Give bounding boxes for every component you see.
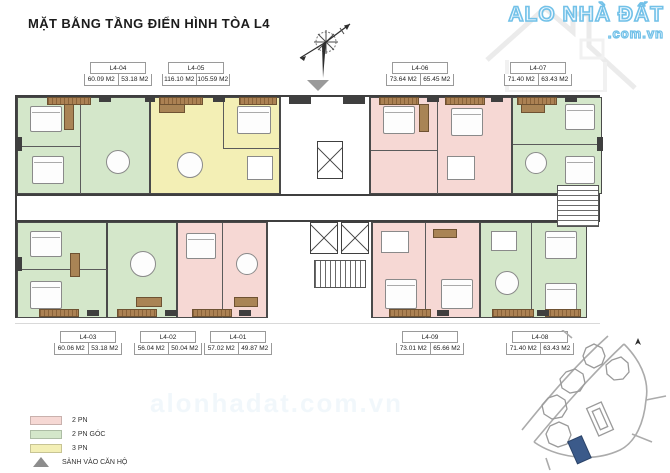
unit-area-net: 65.45 M2 [421, 74, 454, 84]
ghost-watermark: alonhadat.com.vn [150, 388, 403, 419]
balcony [517, 97, 557, 105]
elevator-icon [317, 141, 343, 179]
corridor [17, 194, 598, 222]
balcony [379, 97, 419, 105]
unit-area-gross: 60.06 M2 [55, 343, 89, 353]
legend-label: 2 PN GÓC [72, 431, 105, 438]
unit-area-gross: 60.09 M2 [85, 74, 119, 84]
balcony [47, 97, 91, 105]
unit-area-net: 65.66 M2 [431, 343, 464, 353]
floorplan-image: { "title": "MẶT BẰNG TẦNG ĐIỂN HÌNH TÒA … [0, 0, 670, 473]
unit-label-l4-02: L4-02 56.04 M250.04 M2 [134, 331, 202, 355]
balcony [39, 309, 79, 317]
unit-label-l4-01: L4-01 57.02 M249.87 M2 [204, 331, 272, 355]
unit-label-l4-07: L4-07 71.40 M263.43 M2 [504, 62, 572, 86]
building-floorplan [15, 95, 600, 318]
balcony [445, 97, 485, 105]
unit-id: L4-04 [90, 62, 146, 74]
compass-rose-icon [292, 12, 356, 82]
legend-item-2pn-goc: 2 PN GÓC [30, 427, 127, 441]
apartment-l4-01 [177, 222, 267, 318]
unit-label-l4-04: L4-04 60.09 M253.18 M2 [84, 62, 152, 86]
unit-area-gross: 116.10 M2 [163, 74, 197, 84]
unit-id: L4-09 [402, 331, 458, 343]
elevator-icon [310, 222, 338, 254]
balcony [192, 309, 232, 317]
unit-area-gross: 71.40 M2 [505, 74, 539, 84]
page-title: MẶT BẰNG TẦNG ĐIỂN HÌNH TÒA L4 [28, 16, 270, 31]
apartment-l4-07 [512, 97, 602, 194]
sitemap-north-arrow-icon [635, 338, 641, 345]
unit-id: L4-05 [168, 62, 224, 74]
legend-swatch-3pn [30, 444, 62, 453]
balcony [159, 97, 203, 105]
unit-area-gross: 56.04 M2 [135, 343, 169, 353]
site-logo-domain: .com.vn [489, 27, 664, 40]
unit-area-net: 63.43 M2 [539, 74, 572, 84]
balcony [389, 309, 431, 317]
apartment-l4-03 [17, 222, 107, 318]
unit-label-l4-09: L4-09 73.01 M265.66 M2 [396, 331, 464, 355]
core-bottom [267, 222, 372, 318]
unit-id: L4-01 [210, 331, 266, 343]
elevator-icon [341, 222, 369, 254]
unit-area-net: 53.18 M2 [89, 343, 122, 353]
unit-area-net: 50.04 M2 [169, 343, 202, 353]
unit-area-gross: 73.01 M2 [397, 343, 431, 353]
building-recess [587, 222, 600, 318]
unit-label-l4-06: L4-06 73.64 M265.45 M2 [386, 62, 454, 86]
legend-swatch-2pn [30, 416, 62, 425]
highlighted-building-l4 [568, 436, 591, 464]
unit-label-l4-03: L4-03 60.06 M253.18 M2 [54, 331, 122, 355]
legend-label: 3 PN [72, 445, 88, 452]
apartment-l4-06 [370, 97, 512, 194]
unit-id: L4-03 [60, 331, 116, 343]
balcony [492, 309, 534, 317]
unit-id: L4-06 [392, 62, 448, 74]
unit-area-net: 105.59 M2 [197, 74, 230, 84]
unit-area-net: 53.18 M2 [119, 74, 152, 84]
apartment-l4-05 [150, 97, 280, 194]
balcony [117, 309, 157, 317]
core-top [280, 97, 370, 194]
ground-line [15, 323, 600, 324]
exterior-staircase-icon [557, 185, 599, 227]
unit-area-gross: 73.64 M2 [387, 74, 421, 84]
apartment-l4-04 [17, 97, 150, 194]
balcony [239, 97, 277, 105]
apartment-l4-09 [372, 222, 480, 318]
legend-item-3pn: 3 PN [30, 441, 127, 455]
unit-area-gross: 57.02 M2 [205, 343, 239, 353]
site-logo-brand: ALO NHÀ ĐẤT [489, 4, 664, 25]
site-logo: ALO NHÀ ĐẤT .com.vn [489, 4, 664, 40]
legend-swatch-2pn-goc [30, 430, 62, 439]
legend-label: SẢNH VÀO CĂN HỘ [62, 459, 127, 466]
balcony [545, 309, 581, 317]
staircase-icon [314, 260, 366, 288]
unit-id: L4-07 [510, 62, 566, 74]
entrance-arrow-icon [307, 80, 329, 91]
legend: 2 PN 2 PN GÓC 3 PN SẢNH VÀO CĂN HỘ [30, 413, 127, 469]
unit-area-net: 49.87 M2 [239, 343, 272, 353]
unit-id: L4-02 [140, 331, 196, 343]
site-location-map [520, 330, 670, 473]
legend-item-entrance: SẢNH VÀO CĂN HỘ [30, 455, 127, 469]
apartment-l4-08 [480, 222, 587, 318]
entrance-triangle-icon [33, 457, 49, 467]
apartment-l4-02-living [107, 222, 177, 318]
unit-label-l4-05: L4-05 116.10 M2105.59 M2 [162, 62, 230, 86]
legend-label: 2 PN [72, 417, 88, 424]
legend-item-2pn: 2 PN [30, 413, 127, 427]
